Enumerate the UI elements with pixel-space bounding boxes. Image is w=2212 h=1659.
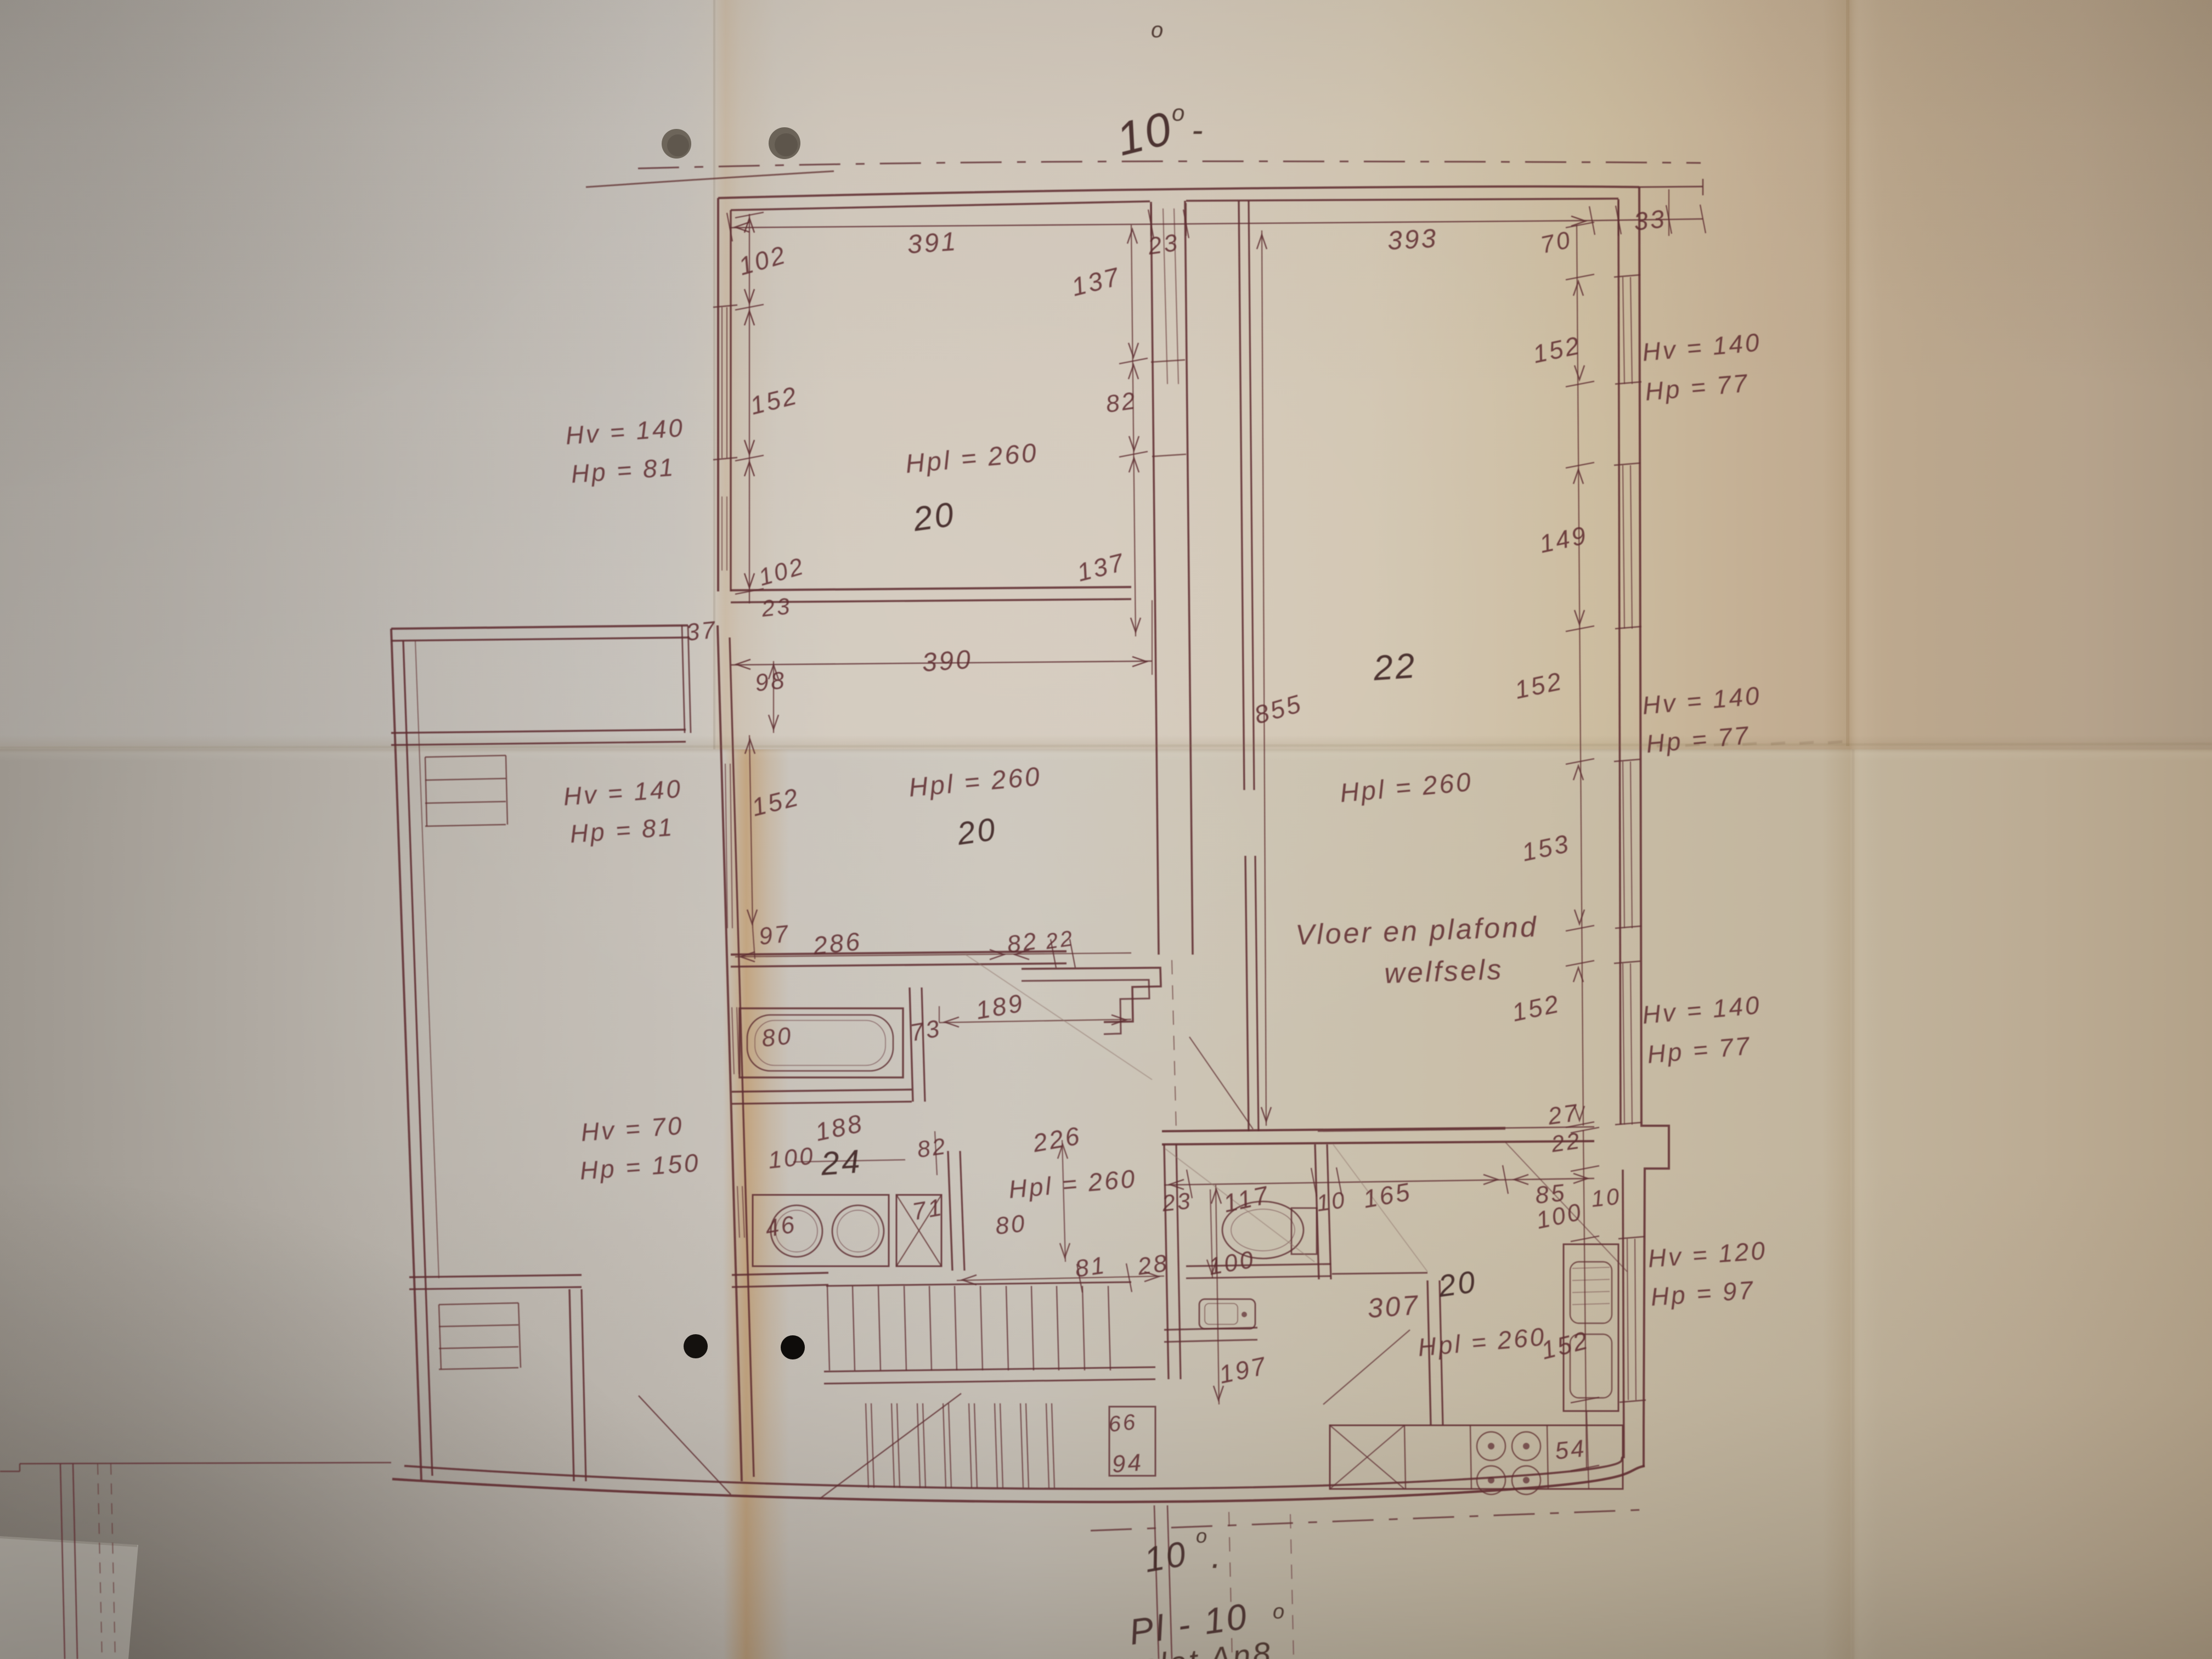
svg-text:20: 20 — [910, 495, 958, 539]
svg-text:82: 82 — [1006, 927, 1040, 958]
svg-text:54: 54 — [1554, 1435, 1588, 1465]
svg-text:80: 80 — [760, 1022, 794, 1052]
svg-text:22: 22 — [1549, 1127, 1583, 1157]
svg-text:o: o — [1196, 1525, 1209, 1547]
svg-text:10: 10 — [1141, 1533, 1190, 1580]
svg-text:80: 80 — [994, 1210, 1028, 1240]
svg-text:81: 81 — [1074, 1251, 1108, 1282]
svg-text:o: o — [1273, 1600, 1286, 1623]
svg-text:o: o — [1172, 100, 1187, 126]
svg-text:27: 27 — [1546, 1099, 1581, 1130]
svg-text:37: 37 — [685, 616, 719, 646]
svg-text:23: 23 — [760, 592, 793, 622]
svg-text:20: 20 — [1436, 1264, 1479, 1304]
svg-text:10: 10 — [1590, 1183, 1622, 1211]
svg-text:22: 22 — [1372, 646, 1418, 688]
svg-text:.: . — [1211, 1536, 1223, 1576]
svg-text:100: 100 — [767, 1142, 816, 1174]
svg-text:66: 66 — [1107, 1410, 1138, 1437]
svg-text:82: 82 — [1104, 387, 1139, 417]
svg-text:82: 82 — [916, 1133, 949, 1163]
svg-text:-: - — [1192, 111, 1205, 149]
svg-text:o: o — [1151, 18, 1165, 42]
svg-text:73: 73 — [908, 1015, 944, 1047]
svg-text:307: 307 — [1367, 1289, 1421, 1324]
svg-text:20: 20 — [955, 811, 1000, 852]
svg-text:22: 22 — [1043, 926, 1076, 954]
svg-text:98: 98 — [754, 667, 788, 697]
svg-text:23: 23 — [1146, 229, 1181, 260]
svg-text:23: 23 — [1160, 1187, 1193, 1216]
svg-text:391: 391 — [906, 227, 959, 259]
svg-text:71: 71 — [910, 1194, 946, 1226]
svg-text:28: 28 — [1136, 1249, 1171, 1280]
svg-text:286: 286 — [811, 927, 864, 960]
svg-text:393: 393 — [1387, 224, 1439, 256]
svg-text:33: 33 — [1633, 204, 1668, 236]
svg-text:46: 46 — [763, 1211, 799, 1243]
svg-text:390: 390 — [921, 645, 974, 678]
svg-text:24: 24 — [819, 1143, 863, 1182]
svg-text:10: 10 — [1315, 1187, 1348, 1216]
svg-text:94: 94 — [1111, 1449, 1144, 1478]
svg-text:97: 97 — [758, 920, 792, 950]
svg-text:welfsels: welfsels — [1384, 953, 1504, 990]
